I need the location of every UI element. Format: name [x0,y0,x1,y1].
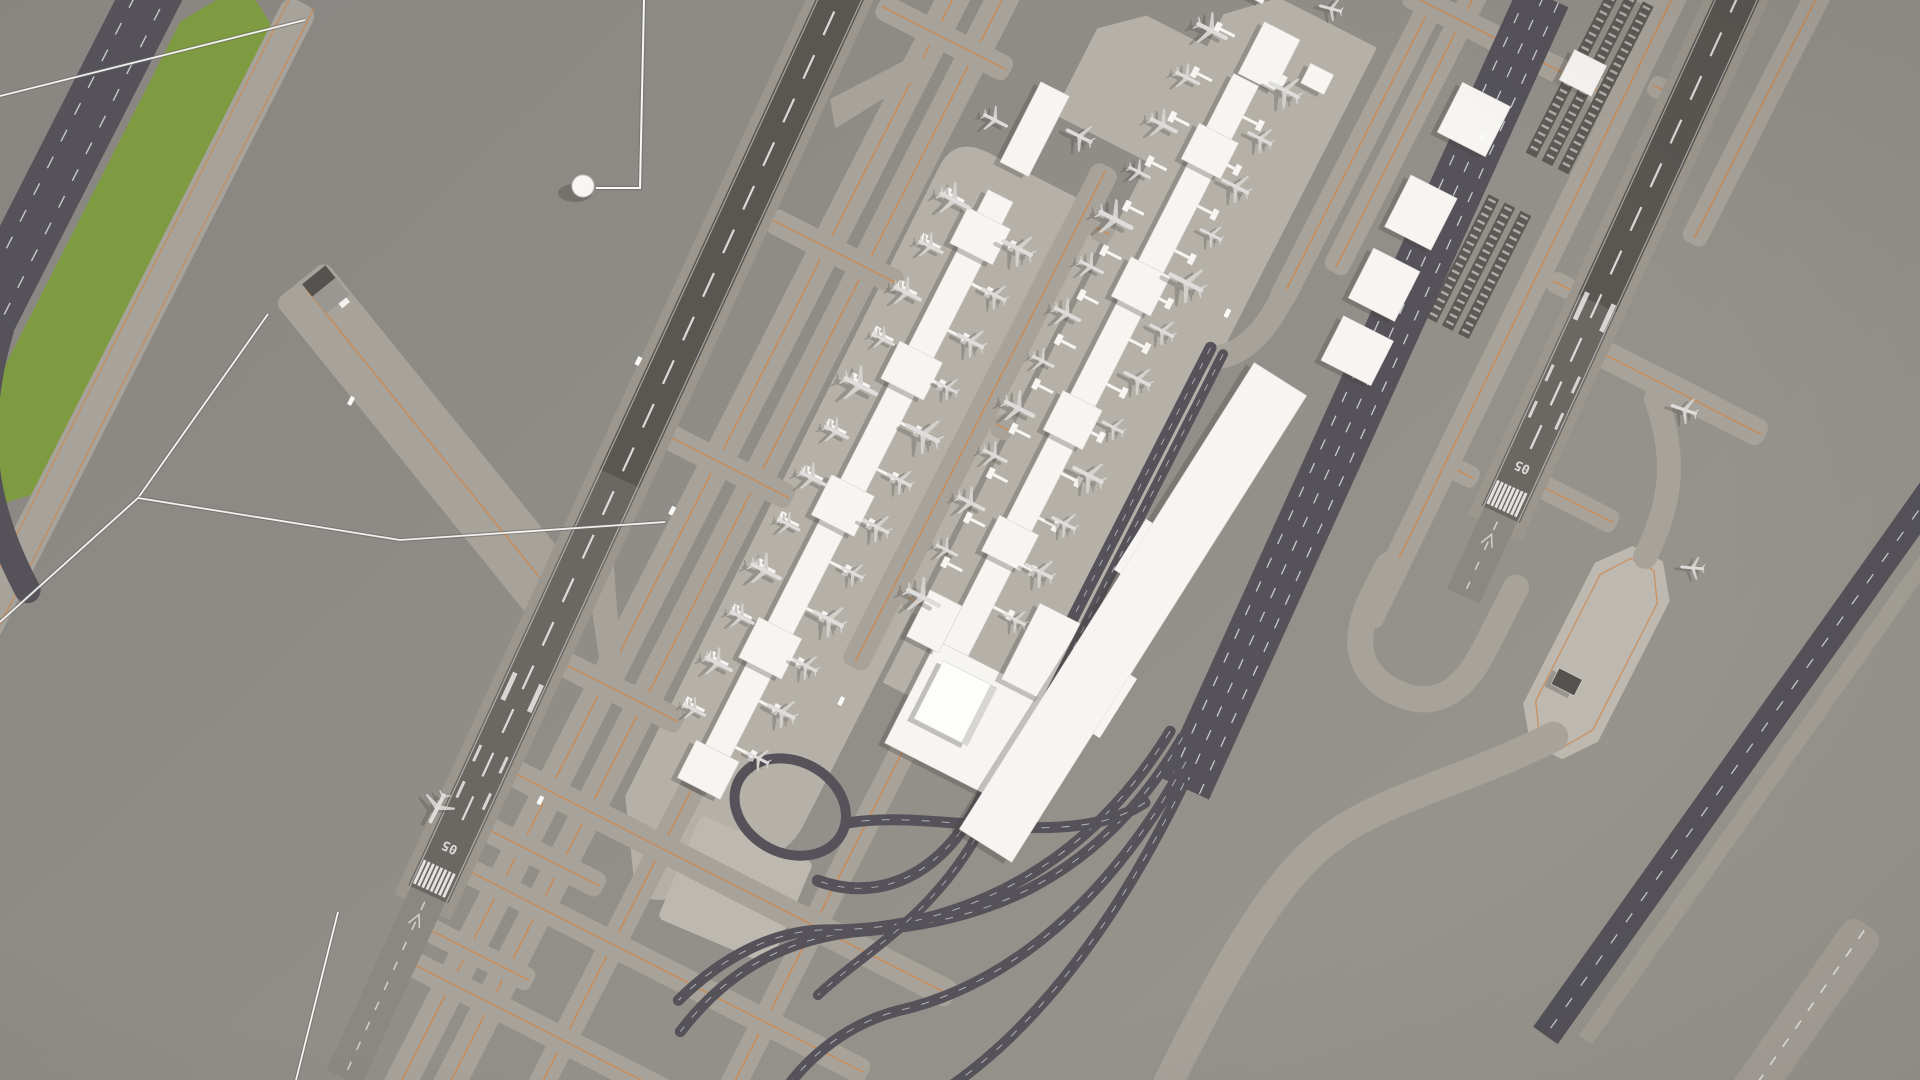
fuel-tank [572,175,594,197]
airport-aerial-view[interactable]: 0505 [0,0,1920,1080]
airport-map-canvas[interactable]: 0505 [0,0,1920,1080]
